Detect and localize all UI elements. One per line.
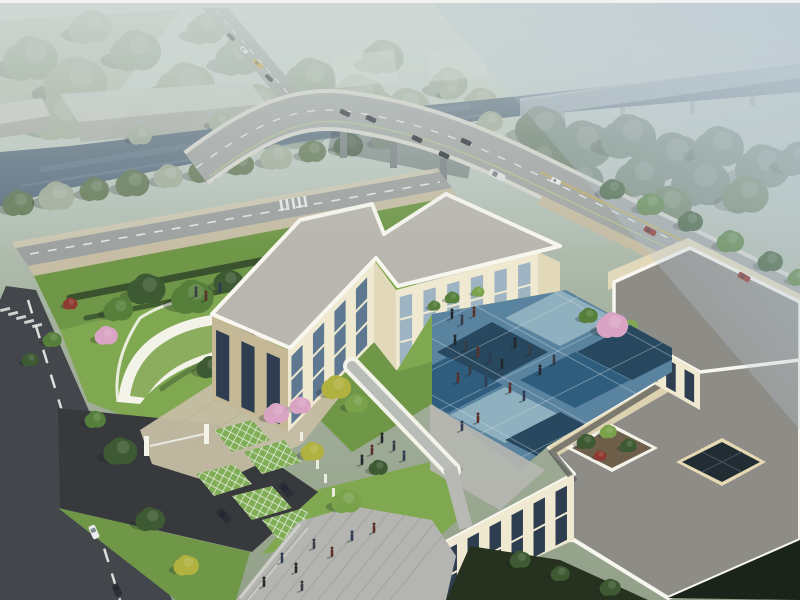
window-strip [241, 341, 254, 413]
gate-right-pillar [204, 424, 209, 444]
window-strip [356, 277, 367, 357]
top-border [0, 0, 800, 3]
rendering-canvas: Aerial 3D architectural rendering: cream… [0, 0, 800, 600]
window-strip [685, 369, 695, 402]
gate-left-pillar [144, 436, 149, 456]
architectural-rendering: Aerial 3D architectural rendering: cream… [0, 0, 800, 600]
window-strip [216, 330, 229, 402]
